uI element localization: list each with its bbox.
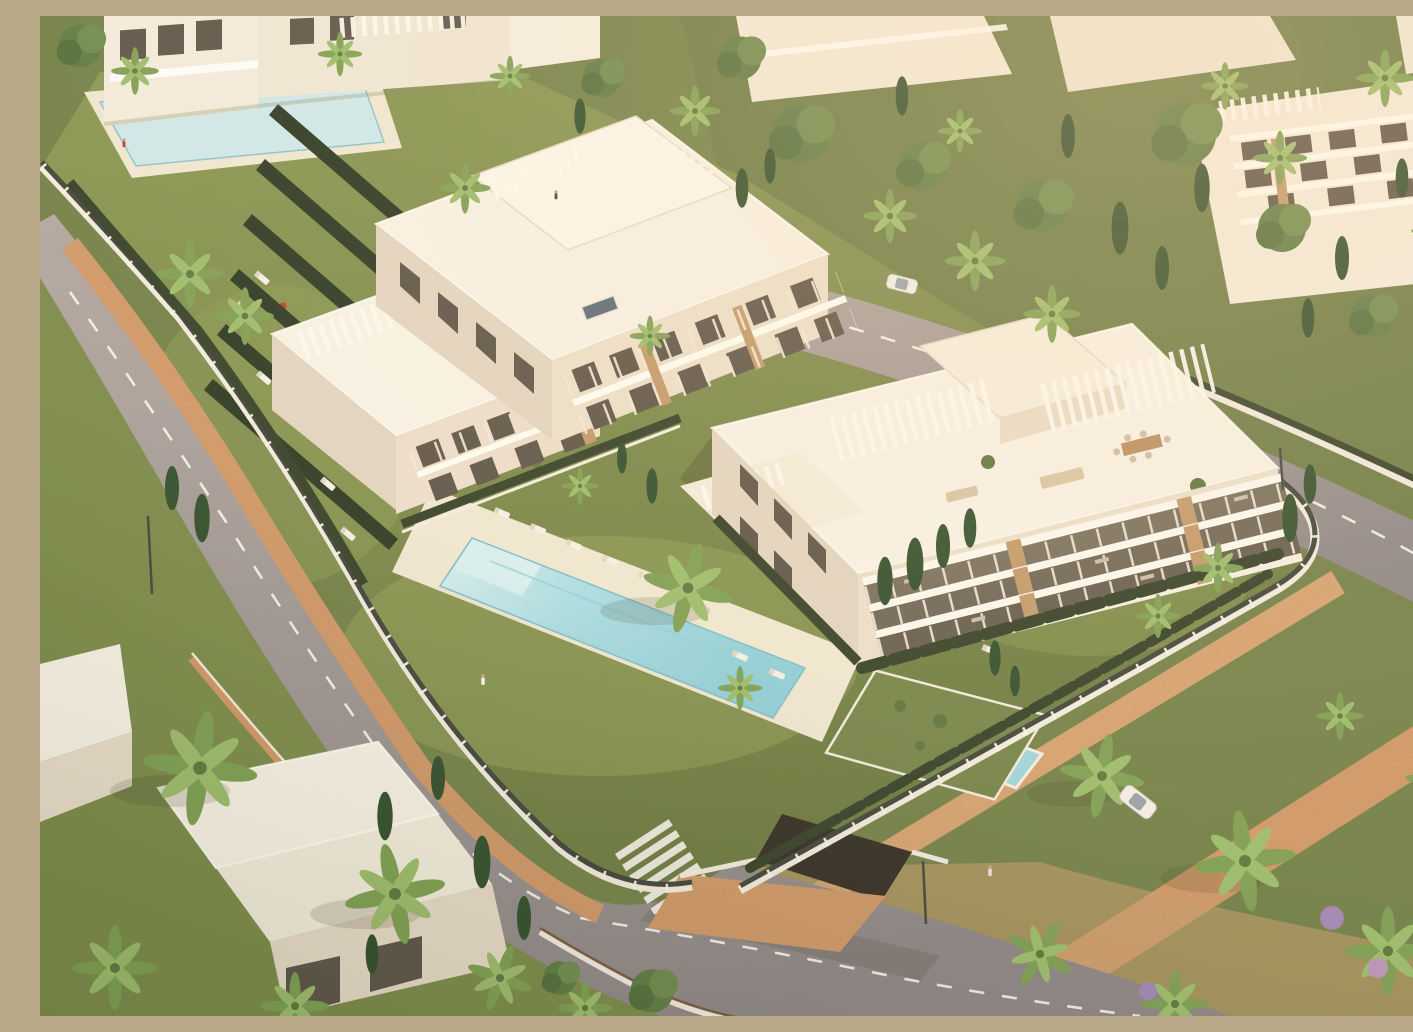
render-canvas — [40, 16, 1413, 1016]
aerial-render — [40, 16, 1413, 1016]
vignette-overlay — [40, 16, 1413, 1016]
